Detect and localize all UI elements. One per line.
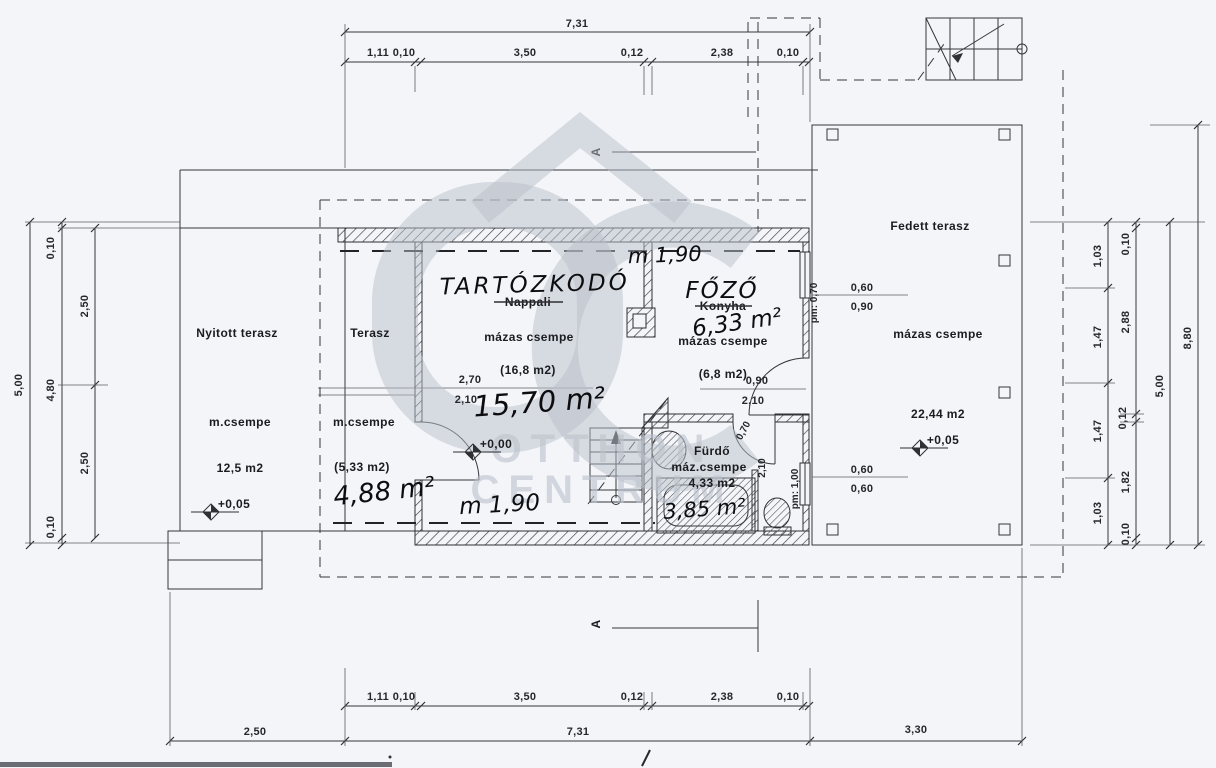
dim-right-chain: 0,10	[1120, 233, 1132, 256]
terrace-post	[999, 524, 1010, 535]
dim-top-seg: 3,50	[514, 47, 537, 59]
dim-bottom-seg: 3,50	[514, 691, 537, 703]
dim-window2-h: 0,60	[851, 483, 874, 495]
dim-window2-w: 0,60	[851, 464, 874, 476]
room-name: Fedett terasz	[890, 219, 969, 233]
dim-left-total: 5,00	[13, 374, 25, 397]
entry-steps	[168, 531, 262, 560]
dimension-chain-right: 1,03 1,47 1,47 1,03 0,10 2,88 0,12 1,82 …	[1030, 121, 1210, 549]
dim-bottom-seg: 0,10	[777, 691, 800, 703]
dim-bottom-seg: 0,10	[393, 691, 416, 703]
dim-right-inner: 1,03	[1092, 245, 1104, 268]
room-area: 22,44 m2	[911, 407, 965, 421]
dim-kitchen-door-w: 0,90	[746, 375, 769, 387]
staircase-upper	[926, 18, 1027, 80]
room-finish: mázas csempe	[678, 334, 768, 348]
dim-right-chain: 1,82	[1120, 471, 1132, 494]
dim-window1-h: 0,90	[851, 301, 874, 313]
room-finish: máz.csempe	[671, 460, 746, 474]
dim-left-inner: 2,50	[79, 295, 91, 318]
floorplan-scan: A A OTTHON CENTRUM Nyitott terasz m.csem…	[0, 0, 1216, 768]
dim-left-inner: 2,50	[79, 452, 91, 475]
dim-left-chain: 0,10	[45, 237, 57, 260]
dimension-chain-bottom: 1,11 0,10 3,50 0,12 2,38 0,10 2,50 7,31 …	[166, 548, 1026, 746]
chimney-flue	[633, 314, 646, 328]
dim-right-total: 5,00	[1154, 375, 1166, 398]
terrace-post	[999, 255, 1010, 266]
terrace-post	[827, 129, 838, 140]
dim-right-chain: 2,88	[1120, 311, 1132, 334]
dim-bottom-seg: 1,11	[367, 691, 389, 703]
floorplan-drawing: A A OTTHON CENTRUM Nyitott terasz m.csem…	[0, 0, 1216, 768]
headroom-note-handwritten: m 1,90	[627, 242, 702, 269]
dim-right-inner: 1,47	[1092, 420, 1104, 443]
room-area: 12,5 m2	[217, 461, 264, 475]
room-open-terrace-labels: Nyitott terasz m.csempe 12,5 m2 +0,05	[191, 326, 278, 520]
dim-living-glass-h: 2,10	[455, 394, 478, 406]
level-value: +0,05	[218, 497, 250, 511]
dim-bottom-total: 3,30	[905, 724, 928, 736]
section-marker-bottom: A	[589, 619, 603, 628]
dim-right-chain: 0,12	[1117, 407, 1129, 430]
room-area: (16,8 m2)	[500, 363, 556, 377]
room-covered-terrace-labels: Fedett terasz mázas csempe 22,44 m2 +0,0…	[890, 219, 982, 456]
dim-kitchen-door-h: 2,10	[742, 395, 765, 407]
room-name: Nyitott terasz	[196, 326, 278, 340]
dim-left-chain: 0,10	[45, 516, 57, 539]
room-finish: mázas csempe	[893, 327, 983, 341]
room-name: Fürdő	[694, 444, 730, 458]
dim-kitchen-window-parapet: pm: 0,70	[809, 282, 820, 323]
dim-right-inner: 1,03	[1092, 502, 1104, 525]
dim-bath-window-parapet: pm: 1,00	[790, 468, 801, 509]
bath-window	[800, 463, 810, 505]
scan-artifacts	[0, 750, 650, 767]
terrace-post	[827, 524, 838, 535]
level-value: +0,00	[480, 437, 512, 451]
dim-top-seg: 0,10	[393, 47, 416, 59]
dim-top-seg: 0,10	[777, 47, 800, 59]
room-area: 4,33 m2	[689, 476, 736, 490]
terrace-post	[999, 129, 1010, 140]
dim-right-chain: 0,10	[1120, 523, 1132, 546]
dim-top-seg: 0,12	[621, 47, 644, 59]
room-name: Terasz	[350, 326, 390, 340]
headroom-note-handwritten: m 1,90	[459, 490, 541, 520]
dim-top-seg: 2,38	[711, 47, 734, 59]
dim-bottom-total: 2,50	[244, 726, 267, 738]
room-finish: m.csempe	[209, 415, 271, 429]
dim-bath-door-h: 2,10	[757, 458, 768, 478]
dim-bottom-seg: 0,12	[621, 691, 644, 703]
level-value: +0,05	[927, 433, 959, 447]
dimension-chain-left: 5,00 0,10 4,80 0,10 2,50 2,50	[13, 218, 180, 549]
dim-right-overall: 8,80	[1182, 327, 1194, 350]
room-finish: mázas csempe	[484, 330, 574, 344]
dim-left-chain: 4,80	[45, 379, 57, 402]
stair-headroom-cut	[642, 398, 668, 428]
dim-living-glass-w: 2,70	[459, 374, 482, 386]
dim-window1-w: 0,60	[851, 282, 874, 294]
dim-right-inner: 1,47	[1092, 326, 1104, 349]
room-area: (6,8 m2)	[699, 367, 748, 381]
terrace-post	[999, 387, 1010, 398]
dim-top-total: 7,31	[566, 18, 589, 30]
room-finish: m.csempe	[333, 415, 395, 429]
dim-bottom-total: 7,31	[567, 726, 590, 738]
wc-bowl	[764, 498, 790, 528]
wc-tank	[764, 527, 791, 535]
room-area: (5,33 m2)	[334, 460, 390, 474]
dim-bottom-seg: 2,38	[711, 691, 734, 703]
dim-top-seg: 1,11	[367, 47, 389, 59]
dim-bath-door-w: 0,70	[734, 419, 753, 442]
